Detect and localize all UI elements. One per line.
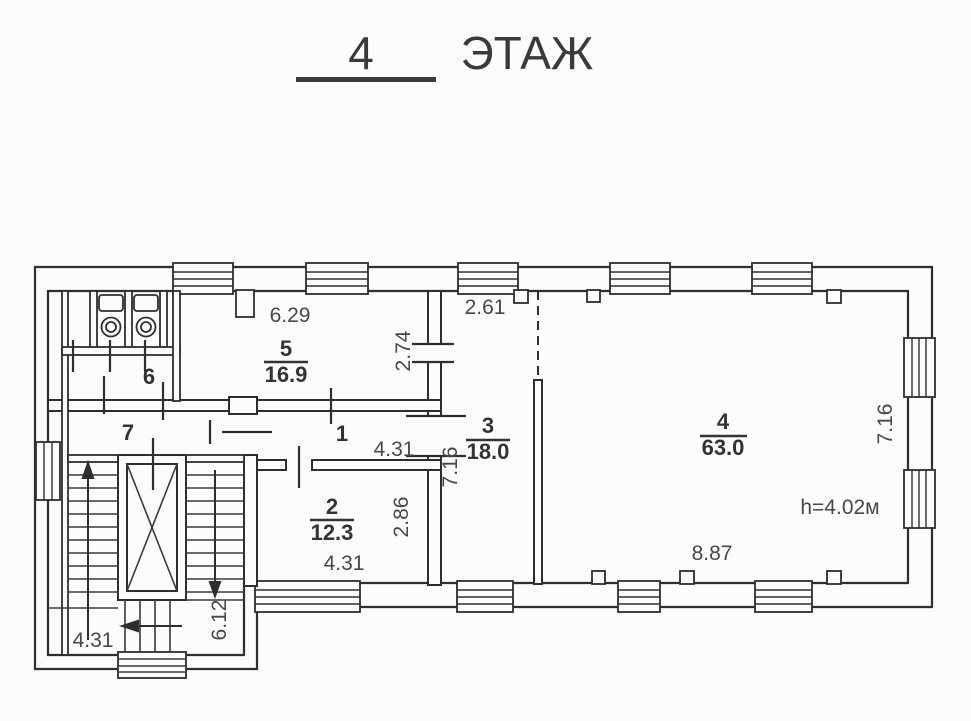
room-4-label: 4 63.0: [700, 409, 747, 460]
pilaster: [827, 571, 841, 584]
dimension-corridor-width: 4.31: [374, 438, 415, 461]
ceiling-height-label: h=4.02м: [800, 496, 879, 519]
pilaster: [827, 290, 841, 303]
room-number: 3: [482, 413, 494, 438]
floor-plan-drawing: 4 ЭТАЖ: [0, 0, 971, 721]
room-number: 1: [336, 421, 348, 446]
window: [36, 442, 60, 500]
room-number: 6: [143, 364, 155, 389]
room-number: 2: [326, 494, 338, 519]
wall-segment: [62, 291, 68, 655]
pilaster: [514, 290, 528, 303]
dimension-room4-width: 8.87: [692, 542, 733, 565]
room-area: 16.9: [265, 362, 308, 387]
title: 4 ЭТАЖ: [296, 27, 593, 82]
room-number: 5: [280, 336, 292, 361]
window: [457, 581, 513, 612]
wall-segment: [229, 397, 257, 414]
wall-segment: [160, 291, 167, 351]
window: [610, 263, 670, 294]
dimension-stair-bay-width: 4.31: [73, 629, 114, 652]
entry-steps: [118, 652, 186, 678]
window: [458, 263, 518, 294]
window: [755, 581, 812, 612]
dimension-room2-depth: 2.86: [390, 497, 413, 538]
pilaster: [592, 571, 605, 584]
window: [904, 338, 935, 397]
room-area: 63.0: [702, 435, 745, 460]
dimension-room4-depth: 7.16: [874, 404, 897, 445]
wall-segment: [125, 291, 132, 351]
dimension-room3-width: 2.61: [465, 296, 506, 319]
stairs-up-arrow: [82, 460, 95, 640]
room-6-label: 6: [143, 364, 155, 389]
stairs-left-arrow: [119, 620, 182, 633]
window: [618, 581, 660, 612]
wall-segment: [428, 291, 441, 344]
title-underline: [296, 77, 436, 82]
wall-segment: [244, 455, 257, 586]
toilet-icon: [134, 295, 158, 337]
room-number: 7: [122, 420, 134, 445]
room-area: 18.0: [467, 439, 510, 464]
pilaster: [587, 290, 600, 302]
room-5-label: 5 16.9: [264, 336, 308, 387]
pilaster: [236, 290, 254, 317]
room-7-label: 7: [122, 420, 134, 445]
floor-plan-sheet: 4 ЭТАЖ: [0, 0, 971, 721]
wall-segment: [173, 291, 180, 401]
window: [173, 263, 233, 294]
window: [255, 581, 360, 612]
window: [752, 263, 812, 294]
window: [306, 263, 368, 294]
window: [904, 470, 935, 528]
room-3-label: 3 18.0: [466, 413, 510, 464]
dimension-room5-width: 6.29: [270, 304, 311, 327]
room-1-label: 1: [336, 421, 348, 446]
room-number: 4: [717, 409, 730, 434]
wall-segment: [90, 291, 97, 351]
toilet-icon: [99, 295, 123, 337]
wall-segment: [62, 347, 180, 355]
dimension-room3-depth: 7.16: [439, 447, 462, 488]
room-2-label: 2 12.3: [310, 494, 354, 545]
dimension-room2-width: 4.31: [324, 552, 365, 575]
dimension-stair-bay-depth: 6.12: [208, 600, 231, 641]
wall-segment: [312, 460, 441, 470]
room-area: 12.3: [311, 520, 354, 545]
pilaster: [680, 571, 694, 584]
wall-segment: [257, 460, 286, 470]
dimension-room5-depth: 2.74: [392, 330, 415, 371]
title-floor-number: 4: [348, 27, 374, 79]
title-floor-word: ЭТАЖ: [461, 27, 594, 79]
wall-segment: [534, 380, 542, 584]
